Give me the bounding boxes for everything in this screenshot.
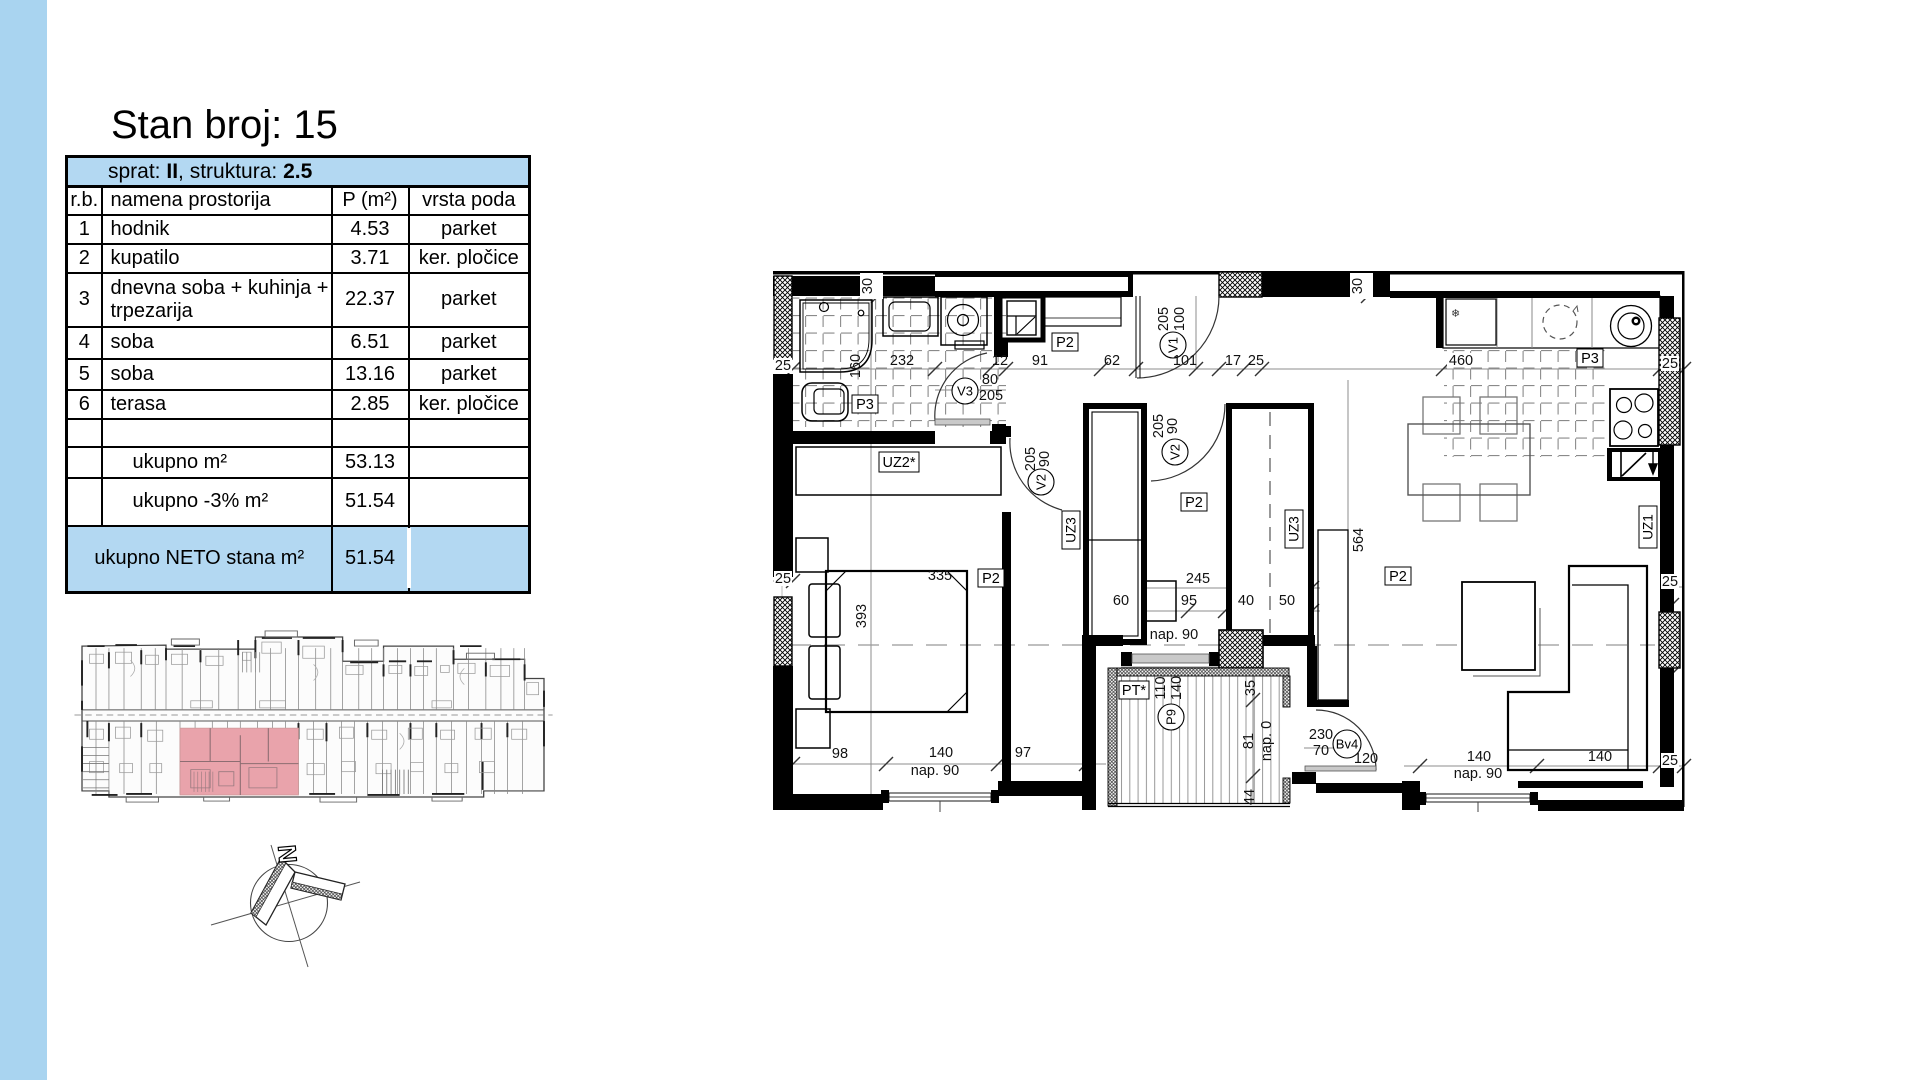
svg-text:140: 140 (929, 745, 953, 761)
svg-text:120: 120 (1354, 751, 1378, 767)
svg-text:N: N (273, 844, 302, 864)
svg-text:25: 25 (775, 571, 791, 587)
svg-text:❄: ❄ (1451, 308, 1460, 320)
svg-text:95: 95 (1181, 593, 1197, 609)
svg-text:30: 30 (1350, 278, 1366, 294)
svg-text:40: 40 (1238, 593, 1254, 609)
svg-text:97: 97 (1015, 745, 1031, 761)
svg-text:P3: P3 (1581, 351, 1599, 367)
svg-text:V2: V2 (1168, 444, 1183, 460)
svg-text:UZ3: UZ3 (1287, 516, 1302, 542)
svg-text:81: 81 (1241, 733, 1257, 749)
svg-text:P2: P2 (982, 571, 1000, 587)
svg-text:91: 91 (1032, 353, 1048, 369)
svg-text:PT*: PT* (1122, 683, 1147, 699)
svg-text:P3: P3 (856, 397, 874, 413)
svg-text:70: 70 (1313, 743, 1329, 759)
svg-text:140: 140 (1169, 676, 1185, 700)
svg-text:Bv4: Bv4 (1336, 737, 1358, 752)
svg-text:P9: P9 (1164, 709, 1179, 725)
svg-text:60: 60 (1113, 593, 1129, 609)
svg-text:35: 35 (1243, 680, 1259, 696)
svg-text:205: 205 (1156, 307, 1172, 331)
svg-text:245: 245 (1186, 571, 1210, 587)
svg-text:P2: P2 (1056, 335, 1074, 351)
svg-text:30: 30 (860, 278, 876, 294)
svg-text:nap. 90: nap. 90 (1150, 627, 1198, 643)
svg-text:V3: V3 (957, 384, 973, 399)
svg-text:100: 100 (1172, 307, 1188, 331)
svg-text:564: 564 (1351, 528, 1367, 552)
svg-text:25: 25 (1662, 574, 1678, 590)
svg-text:205: 205 (979, 388, 1003, 404)
svg-text:140: 140 (1588, 749, 1612, 765)
svg-text:44: 44 (1242, 789, 1258, 805)
svg-text:90: 90 (1165, 418, 1181, 434)
svg-text:230: 230 (1309, 727, 1333, 743)
svg-text:460: 460 (1449, 353, 1473, 369)
svg-text:232: 232 (890, 353, 914, 369)
svg-text:nap. 90: nap. 90 (911, 763, 959, 779)
svg-text:UZ3: UZ3 (1064, 517, 1079, 543)
svg-text:50: 50 (1279, 593, 1295, 609)
svg-text:393: 393 (854, 604, 870, 628)
svg-text:nap. 0: nap. 0 (1259, 721, 1275, 761)
svg-text:P2: P2 (1185, 495, 1203, 511)
svg-text:160: 160 (848, 354, 864, 378)
svg-text:25: 25 (1662, 356, 1678, 372)
svg-text:90: 90 (1037, 451, 1053, 467)
svg-text:25: 25 (1662, 753, 1678, 769)
svg-text:335: 335 (928, 568, 952, 584)
svg-text:25: 25 (1248, 353, 1264, 369)
svg-text:V1: V1 (1166, 337, 1181, 353)
svg-text:62: 62 (1104, 353, 1120, 369)
svg-text:110: 110 (1153, 676, 1169, 699)
svg-text:UZ1: UZ1 (1641, 514, 1656, 540)
svg-text:V2: V2 (1034, 474, 1049, 490)
svg-text:25: 25 (775, 358, 791, 374)
svg-text:nap. 90: nap. 90 (1454, 766, 1502, 782)
svg-text:80: 80 (982, 372, 998, 388)
svg-text:101: 101 (1173, 353, 1197, 369)
svg-text:98: 98 (832, 746, 848, 762)
svg-text:12: 12 (992, 353, 1008, 369)
svg-text:UZ2*: UZ2* (882, 455, 915, 471)
svg-text:17: 17 (1225, 353, 1241, 369)
svg-text:140: 140 (1467, 749, 1491, 765)
svg-text:P2: P2 (1389, 569, 1407, 585)
